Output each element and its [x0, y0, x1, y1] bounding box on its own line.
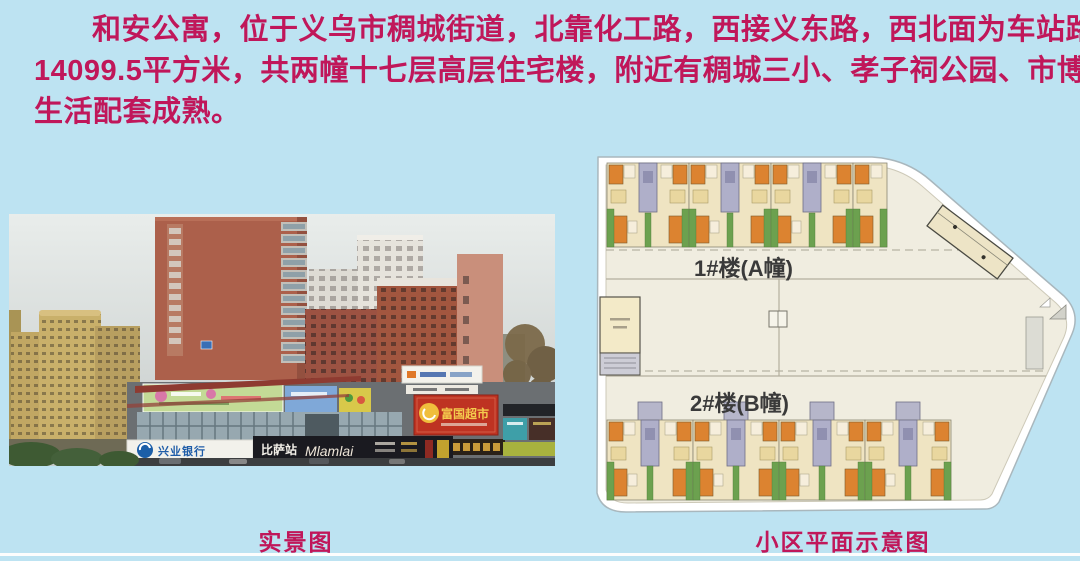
site-plan-drawing: 1#楼(A幢) 2#楼(B幢)	[0, 0, 1080, 556]
slide: 和安公寓，位于义乌市稠城街道，北靠化工路，西接义东路，西北面为车站路。小区占地1…	[0, 0, 1080, 556]
site-plan: 1#楼(A幢) 2#楼(B幢)	[0, 0, 1080, 556]
plan-caption: 小区平面示意图	[756, 523, 931, 557]
parking-strip	[1026, 317, 1043, 369]
building-a-label: 1#楼(A幢)	[694, 256, 793, 281]
building-b-label: 2#楼(B幢)	[690, 391, 789, 416]
unit-module	[607, 163, 689, 247]
photo-caption: 实景图	[259, 523, 334, 557]
unit-module	[689, 163, 771, 247]
unit-module	[771, 163, 853, 247]
building-a-units	[607, 163, 887, 247]
unit-module	[853, 163, 887, 247]
ancillary-building	[600, 297, 640, 375]
